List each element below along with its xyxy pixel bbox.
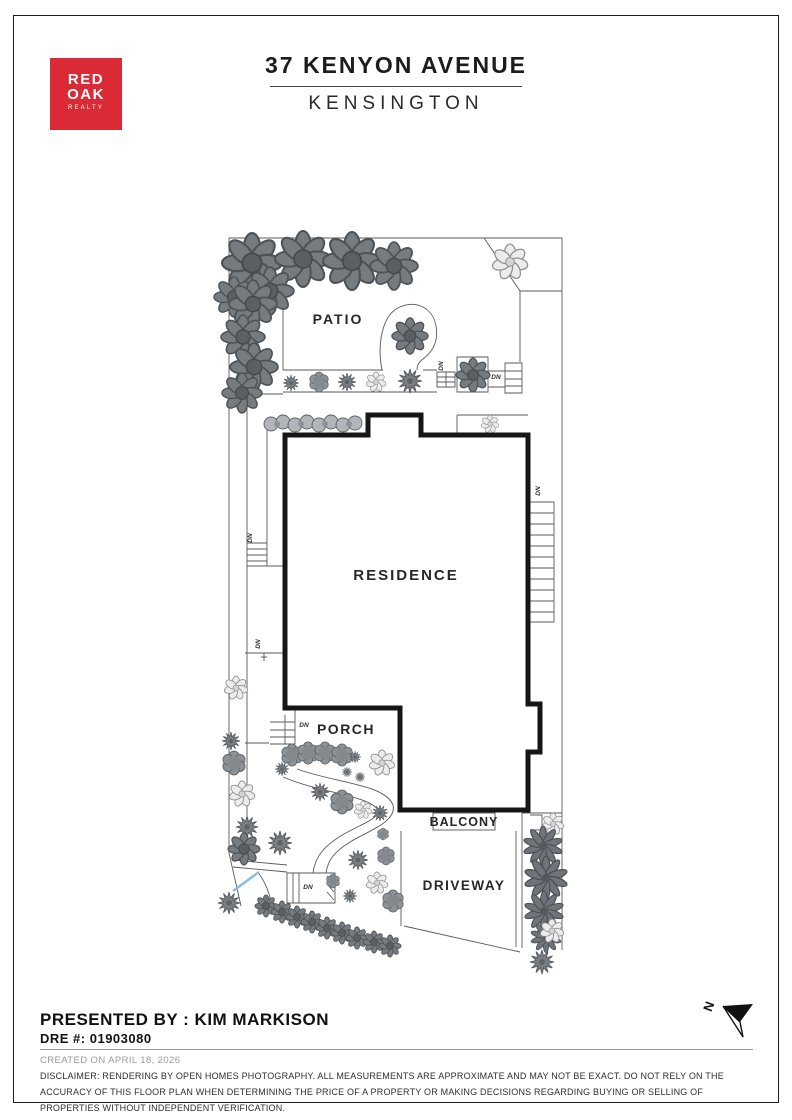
hedge-row: [264, 415, 362, 432]
flyer-page: RED OAK REALTY 37 KENYON AVENUE KENSINGT…: [0, 0, 792, 1120]
footer-divider: [40, 1049, 753, 1050]
balcony-label: BALCONY: [430, 815, 499, 829]
dn-label: DN: [247, 533, 254, 543]
site-plan-drawing: PATIO RESIDENCE PORCH BALCONY DRIVEWAY D…: [0, 0, 792, 1120]
dre-number-text: DRE #: 01903080: [40, 1031, 152, 1046]
blue-gate-line: [233, 872, 259, 891]
created-date-text: CREATED ON APRIL 18, 2026: [40, 1055, 180, 1066]
disclaimer-text: DISCLAIMER: RENDERING BY OPEN HOMES PHOT…: [40, 1068, 756, 1116]
dn-label: DN: [535, 486, 542, 496]
dn-label: DN: [491, 374, 501, 381]
porch-label: PORCH: [317, 721, 375, 737]
dn-label: DN: [438, 361, 445, 371]
patio-label: PATIO: [313, 311, 364, 327]
north-arrow: N: [700, 999, 753, 1037]
dn-label: DN: [255, 639, 262, 649]
dn-label: DN: [299, 722, 309, 729]
residence-label: RESIDENCE: [353, 567, 459, 584]
presented-by-text: PRESENTED BY : KIM MARKISON: [40, 1010, 329, 1030]
driveway-label: DRIVEWAY: [423, 878, 506, 893]
dn-label: DN: [303, 884, 313, 891]
north-letter: N: [700, 999, 717, 1013]
